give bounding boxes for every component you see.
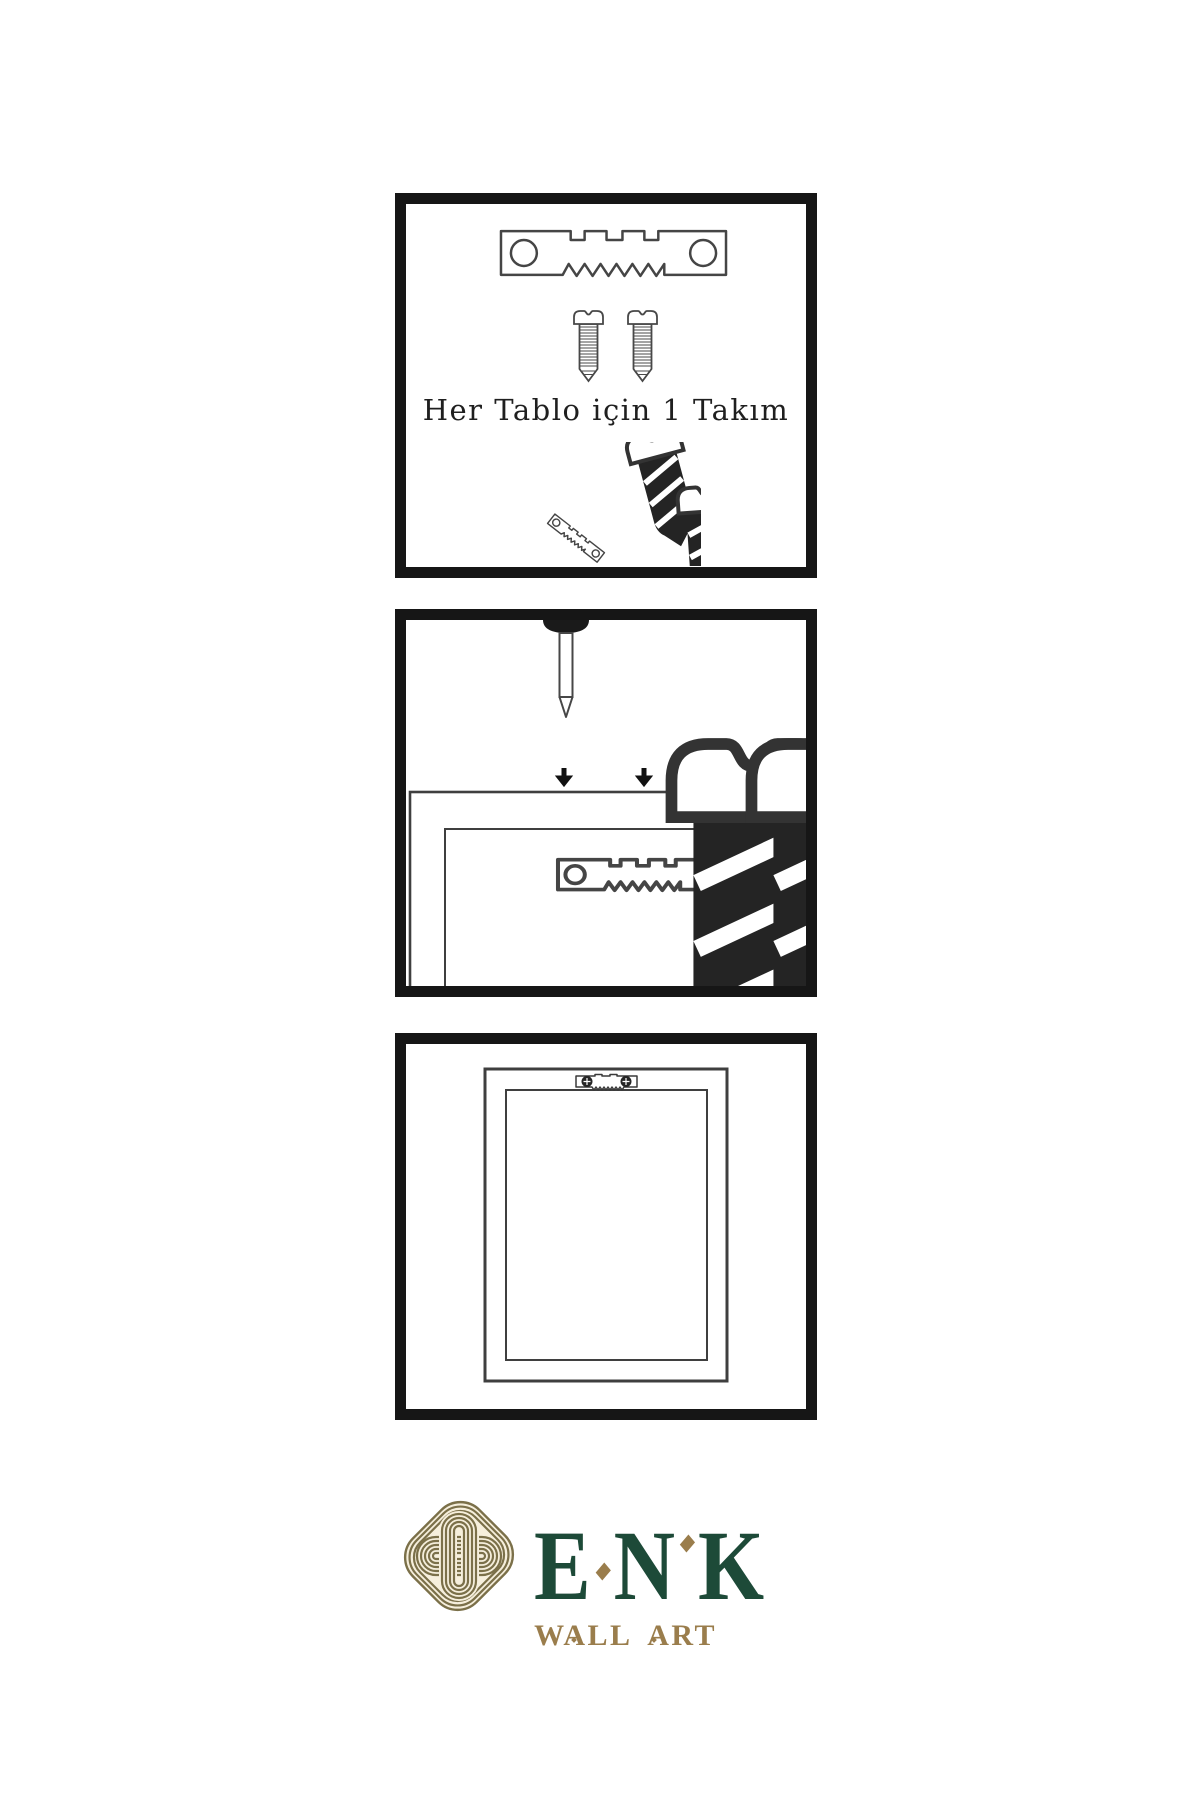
arrow-down-icon [635, 768, 653, 787]
hanger-screw-head-icon [582, 1077, 592, 1087]
brand-tagline-text: WALL ART [534, 1619, 717, 1652]
diamond-accent-icon [596, 1563, 611, 1581]
brand-text-block: E N K WALL ART [534, 1488, 807, 1651]
mounted-hanger-icon [576, 1075, 637, 1091]
step-1-panel: Her Tablo için 1 Takım [395, 193, 817, 578]
brand-name: E N K [534, 1516, 766, 1616]
brand-letter: E [534, 1516, 592, 1616]
arrow-down-icon [555, 768, 573, 787]
step-2-panel [395, 609, 817, 997]
diamond-accent-icon [680, 1535, 695, 1553]
knot-logo-icon [393, 1488, 525, 1624]
wall-nail-icon [543, 620, 589, 717]
brand-letter: N [614, 1516, 677, 1616]
hanger-screw-head-icon [621, 1077, 631, 1087]
screw-into-hanger-assembly-icon [546, 442, 701, 566]
sawtooth-hanger-icon [497, 224, 730, 282]
screw-icon [572, 307, 605, 384]
frame-back-drawing [485, 1069, 727, 1381]
step-2-content [406, 620, 806, 986]
step-3-panel [395, 1033, 817, 1420]
brand-logo: E N K WALL ART [0, 1488, 1200, 1651]
brand-tagline: WALL ART [534, 1621, 717, 1651]
brand-letter: K [698, 1516, 766, 1616]
step-1-content: Her Tablo için 1 Takım [406, 204, 806, 567]
step-3-drawing [406, 1044, 806, 1409]
step-2-drawing [406, 620, 806, 986]
instruction-sheet: Her Tablo için 1 Takım [0, 0, 1200, 1800]
step-3-content [406, 1044, 806, 1409]
step-1-caption: Her Tablo için 1 Takım [406, 393, 806, 427]
screw-icon [626, 307, 659, 384]
